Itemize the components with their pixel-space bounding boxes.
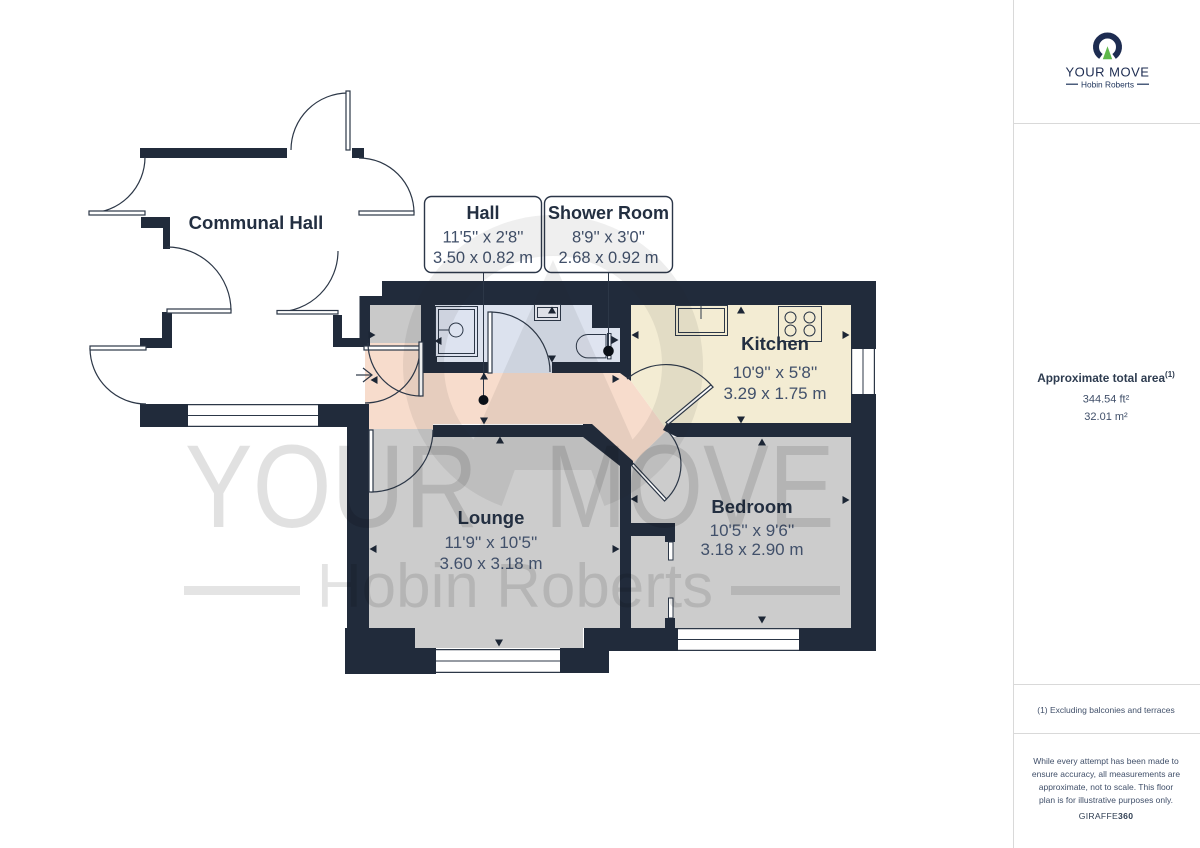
svg-text:GIRAFFE360: GIRAFFE360 [1079, 811, 1134, 821]
svg-text:YOUR MOVE: YOUR MOVE [1066, 65, 1150, 80]
svg-text:Hall: Hall [466, 203, 499, 223]
svg-text:YOUR: YOUR [185, 421, 478, 553]
svg-text:ensure accuracy, all measureme: ensure accuracy, all measurements are [1032, 769, 1180, 779]
svg-text:approximate, not to scale. Thi: approximate, not to scale. This floor [1039, 782, 1174, 792]
svg-text:Hobin Roberts: Hobin Roberts [317, 552, 713, 621]
svg-text:Kitchen: Kitchen [741, 333, 809, 354]
svg-text:MOVE: MOVE [544, 422, 834, 553]
svg-text:Approximate total area(1): Approximate total area(1) [1037, 370, 1175, 385]
svg-text:plan is for illustrative purpo: plan is for illustrative purposes only. [1039, 795, 1173, 805]
svg-text:While every attempt has been m: While every attempt has been made to [1033, 756, 1179, 766]
svg-text:Hobin Roberts: Hobin Roberts [1081, 79, 1134, 89]
svg-text:3.29 x 1.75 m: 3.29 x 1.75 m [723, 384, 826, 403]
svg-text:(1) Excluding balconies and te: (1) Excluding balconies and terraces [1037, 705, 1175, 715]
svg-text:32.01 m²: 32.01 m² [1084, 411, 1128, 423]
svg-text:Communal Hall: Communal Hall [189, 212, 324, 233]
svg-text:10'9'' x 5'8'': 10'9'' x 5'8'' [733, 363, 818, 382]
svg-text:344.54 ft²: 344.54 ft² [1083, 394, 1130, 406]
